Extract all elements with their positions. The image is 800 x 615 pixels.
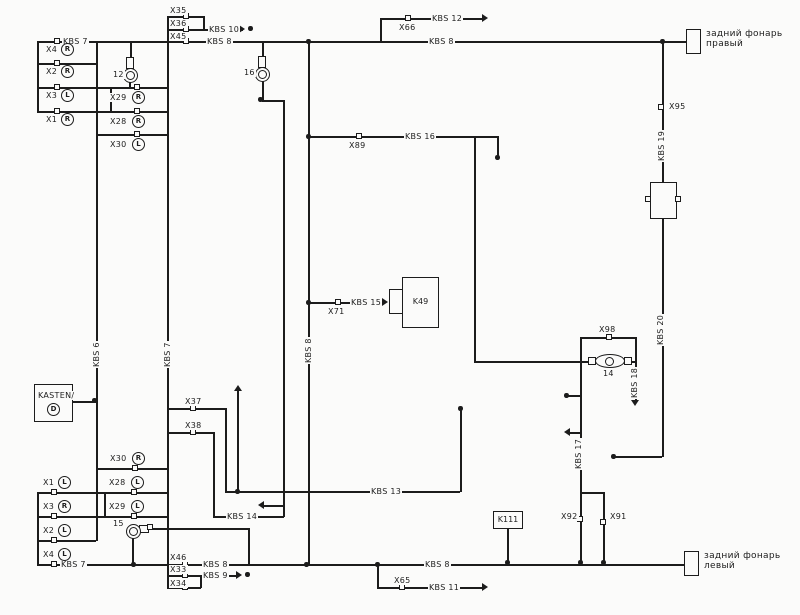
pin-x30-top: X30	[109, 140, 128, 149]
junction-dot	[458, 406, 463, 411]
wire-segment	[225, 408, 227, 492]
arrow-down-icon	[631, 400, 639, 406]
pin-x28-bottom: X28	[108, 478, 127, 487]
wire-segment	[37, 492, 39, 565]
wiring-diagram: задний фонарь правый задний фонарь левый…	[0, 0, 800, 615]
label-kbs15: KBS 15	[350, 298, 382, 307]
label-kbs20: KBS 20	[656, 314, 665, 346]
junction-dot	[304, 562, 309, 567]
rear-lamp-right-label: задний фонарь	[705, 29, 783, 39]
rear-lamp-left-label2: левый	[703, 561, 736, 571]
label-kbs6-vert: KBS 6	[92, 341, 101, 368]
label-x37: X37	[184, 397, 203, 406]
kasten-box: KASTEN/ D	[34, 384, 73, 422]
wire-segment	[104, 492, 106, 517]
bulb-12-icon	[123, 68, 138, 83]
pin-x29-bottom-dir: L	[131, 500, 144, 513]
junction-dot	[660, 39, 665, 44]
label-kbs9: KBS 9	[202, 571, 229, 580]
junction-dot	[375, 562, 380, 567]
label-kbs7-vert: KBS 7	[163, 341, 172, 368]
connector-x29-bottom	[131, 513, 137, 519]
label-x92: X92	[560, 512, 579, 521]
wire-segment	[37, 540, 96, 542]
wire-kbs7-vert	[167, 16, 169, 588]
junction-dot	[601, 560, 606, 565]
label-kbs13: KBS 13	[370, 487, 402, 496]
label-fuse14: 14	[602, 369, 615, 378]
pin-x4-top: X4	[45, 45, 58, 54]
bulb-16-icon	[255, 67, 270, 82]
pin-x28-top-dir: R	[132, 115, 145, 128]
label-kbs8-vert: KBS 8	[304, 337, 313, 364]
wire-segment	[262, 41, 264, 57]
connector-x98	[606, 334, 612, 340]
pin-x3-bottom: X3	[42, 502, 55, 511]
pin-x3-top: X3	[45, 91, 58, 100]
label-bulb16: 16	[243, 68, 256, 77]
connector-x1-bottom	[51, 489, 57, 495]
wire-top-bus	[37, 41, 686, 43]
inline-component-terminal-right	[675, 196, 681, 202]
label-x91: X91	[609, 512, 628, 521]
wire-segment	[377, 564, 379, 588]
connector-x3-bottom	[51, 513, 57, 519]
connector-x89	[356, 133, 362, 139]
connector-x28-top	[134, 108, 140, 114]
rear-lamp-left-box	[684, 551, 699, 576]
pin-x29-bottom: X29	[108, 502, 127, 511]
connector-x95	[658, 104, 664, 110]
connector-x66	[405, 15, 411, 21]
label-x95: X95	[668, 102, 687, 111]
wire-x91	[603, 492, 605, 563]
connector-x29-top	[134, 84, 140, 90]
pin-x28-bottom-dir: L	[131, 476, 144, 489]
wire-x37	[167, 408, 225, 410]
k111-box: K111	[493, 511, 523, 529]
junction-dot	[495, 155, 500, 160]
junction-dot	[258, 97, 263, 102]
wire-segment	[96, 134, 167, 136]
k49-relay-box: K49	[402, 277, 439, 328]
pin-x30-bottom-dir: R	[132, 452, 145, 465]
connector-x4-bottom	[51, 561, 57, 567]
rear-lamp-right-box	[686, 29, 701, 54]
label-x36: X36	[169, 19, 188, 28]
label-x35: X35	[169, 6, 188, 15]
pin-x3-bottom-dir: R	[58, 500, 71, 513]
junction-dot	[306, 39, 311, 44]
rear-lamp-left-label: задний фонарь	[703, 551, 781, 561]
wire-kbs16	[308, 136, 497, 138]
connector-x2-top	[54, 60, 60, 66]
wire-segment	[132, 538, 134, 564]
pin-x4-bottom-dir: L	[58, 548, 71, 561]
arrow-right-icon	[482, 14, 488, 22]
junction-dot	[306, 134, 311, 139]
bulb-15-terminal	[147, 524, 153, 530]
connector-x30-top	[134, 131, 140, 137]
label-x46: X46	[169, 553, 188, 562]
kasten-circle-d: D	[47, 403, 60, 416]
connector-x4-top	[54, 38, 60, 44]
label-bulb12: 12	[112, 70, 125, 79]
label-x66: X66	[398, 23, 417, 32]
connector-x91	[600, 519, 606, 525]
pin-x30-top-dir: L	[132, 138, 145, 151]
wire-segment	[283, 100, 285, 517]
junction-dot	[578, 560, 583, 565]
pin-x1-bottom: X1	[42, 478, 55, 487]
wire-segment	[474, 136, 476, 362]
fuse-14-center	[605, 357, 614, 366]
kasten-label: KASTEN/	[37, 391, 75, 400]
label-x33: X33	[169, 565, 188, 574]
label-x45: X45	[169, 32, 188, 41]
terminal-dot	[245, 572, 250, 577]
fuse-14-end-right	[624, 357, 632, 365]
arrow-left-icon	[258, 501, 264, 509]
label-x98: X98	[598, 325, 617, 334]
pin-x1-top: X1	[45, 115, 58, 124]
wire-segment	[497, 136, 499, 157]
connector-x71	[335, 299, 341, 305]
pin-x2-top-dir: R	[61, 65, 74, 78]
wire-kbs6	[96, 41, 98, 541]
junction-dot	[505, 560, 510, 565]
pin-x3-top-dir: L	[61, 89, 74, 102]
wire-segment	[213, 432, 215, 517]
label-kbs8-top2: KBS 8	[428, 37, 455, 46]
wire-stub	[570, 432, 580, 434]
label-kbs16: KBS 16	[404, 132, 436, 141]
junction-dot	[611, 454, 616, 459]
label-kbs14: KBS 14	[226, 512, 258, 521]
wire-segment	[237, 389, 239, 492]
connector-x30-bottom	[132, 465, 138, 471]
k49-socket-box	[389, 289, 403, 314]
bulb-15-icon	[126, 524, 141, 539]
pin-x2-top: X2	[45, 67, 58, 76]
pin-x1-bottom-dir: L	[58, 476, 71, 489]
junction-dot	[235, 489, 240, 494]
connector-x28-bottom	[131, 489, 137, 495]
pin-x30-bottom: X30	[109, 454, 128, 463]
arrow-right-icon	[236, 571, 242, 579]
junction-dot	[92, 398, 97, 403]
wire-segment	[248, 528, 250, 565]
label-x38: X38	[184, 421, 203, 430]
wire-segment	[203, 16, 205, 30]
label-kbs17: KBS 17	[574, 438, 583, 470]
wire-segment	[130, 41, 132, 58]
wire-segment	[580, 337, 582, 362]
label-x71: X71	[327, 307, 346, 316]
label-kbs8-x46: KBS 8	[202, 560, 229, 569]
label-kbs19: KBS 19	[657, 130, 666, 162]
wire-segment	[37, 41, 39, 112]
label-kbs10: KBS 10	[208, 25, 240, 34]
inline-component-terminal-left	[645, 196, 651, 202]
terminal-dot	[248, 26, 253, 31]
wire-segment	[460, 408, 462, 492]
label-kbs12: KBS 12	[431, 14, 463, 23]
connector-x2-bottom	[51, 537, 57, 543]
label-kbs8-top: KBS 8	[206, 37, 233, 46]
label-kbs8-bottom: KBS 8	[424, 560, 451, 569]
arrow-right-icon	[382, 298, 388, 306]
inline-component-box	[650, 182, 677, 219]
wire-stub	[262, 505, 284, 507]
label-x34: X34	[169, 579, 188, 588]
wire-bulb16	[262, 100, 284, 102]
label-x89: X89	[348, 141, 367, 150]
label-x65: X65	[393, 576, 412, 585]
pin-x29-top: X29	[109, 93, 128, 102]
arrow-left-icon	[564, 428, 570, 436]
wire-k111	[507, 529, 509, 563]
pin-x2-bottom: X2	[42, 526, 55, 535]
wire-kbs13	[225, 491, 460, 493]
label-kbs11: KBS 11	[428, 583, 460, 592]
pin-x4-bottom: X4	[42, 550, 55, 559]
label-kbs7-bottom: KBS 7	[60, 560, 87, 569]
label-kbs18: KBS 18	[630, 367, 639, 399]
arrow-right-icon	[482, 583, 488, 591]
wire-segment	[380, 18, 382, 42]
wire-kbs20-end	[613, 456, 662, 458]
pin-x29-top-dir: R	[132, 91, 145, 104]
rear-lamp-right-label2: правый	[705, 39, 744, 49]
pin-x4-top-dir: R	[61, 43, 74, 56]
pin-x1-top-dir: R	[61, 113, 74, 126]
label-bulb15: 15	[112, 519, 125, 528]
pin-x28-top: X28	[109, 117, 128, 126]
connector-x3-top	[54, 84, 60, 90]
arrow-up-icon	[234, 385, 242, 391]
junction-dot	[306, 300, 311, 305]
wire-branch	[580, 492, 604, 494]
connector-x1-top	[54, 108, 60, 114]
junction-dot	[564, 393, 569, 398]
pin-x2-bottom-dir: L	[58, 524, 71, 537]
